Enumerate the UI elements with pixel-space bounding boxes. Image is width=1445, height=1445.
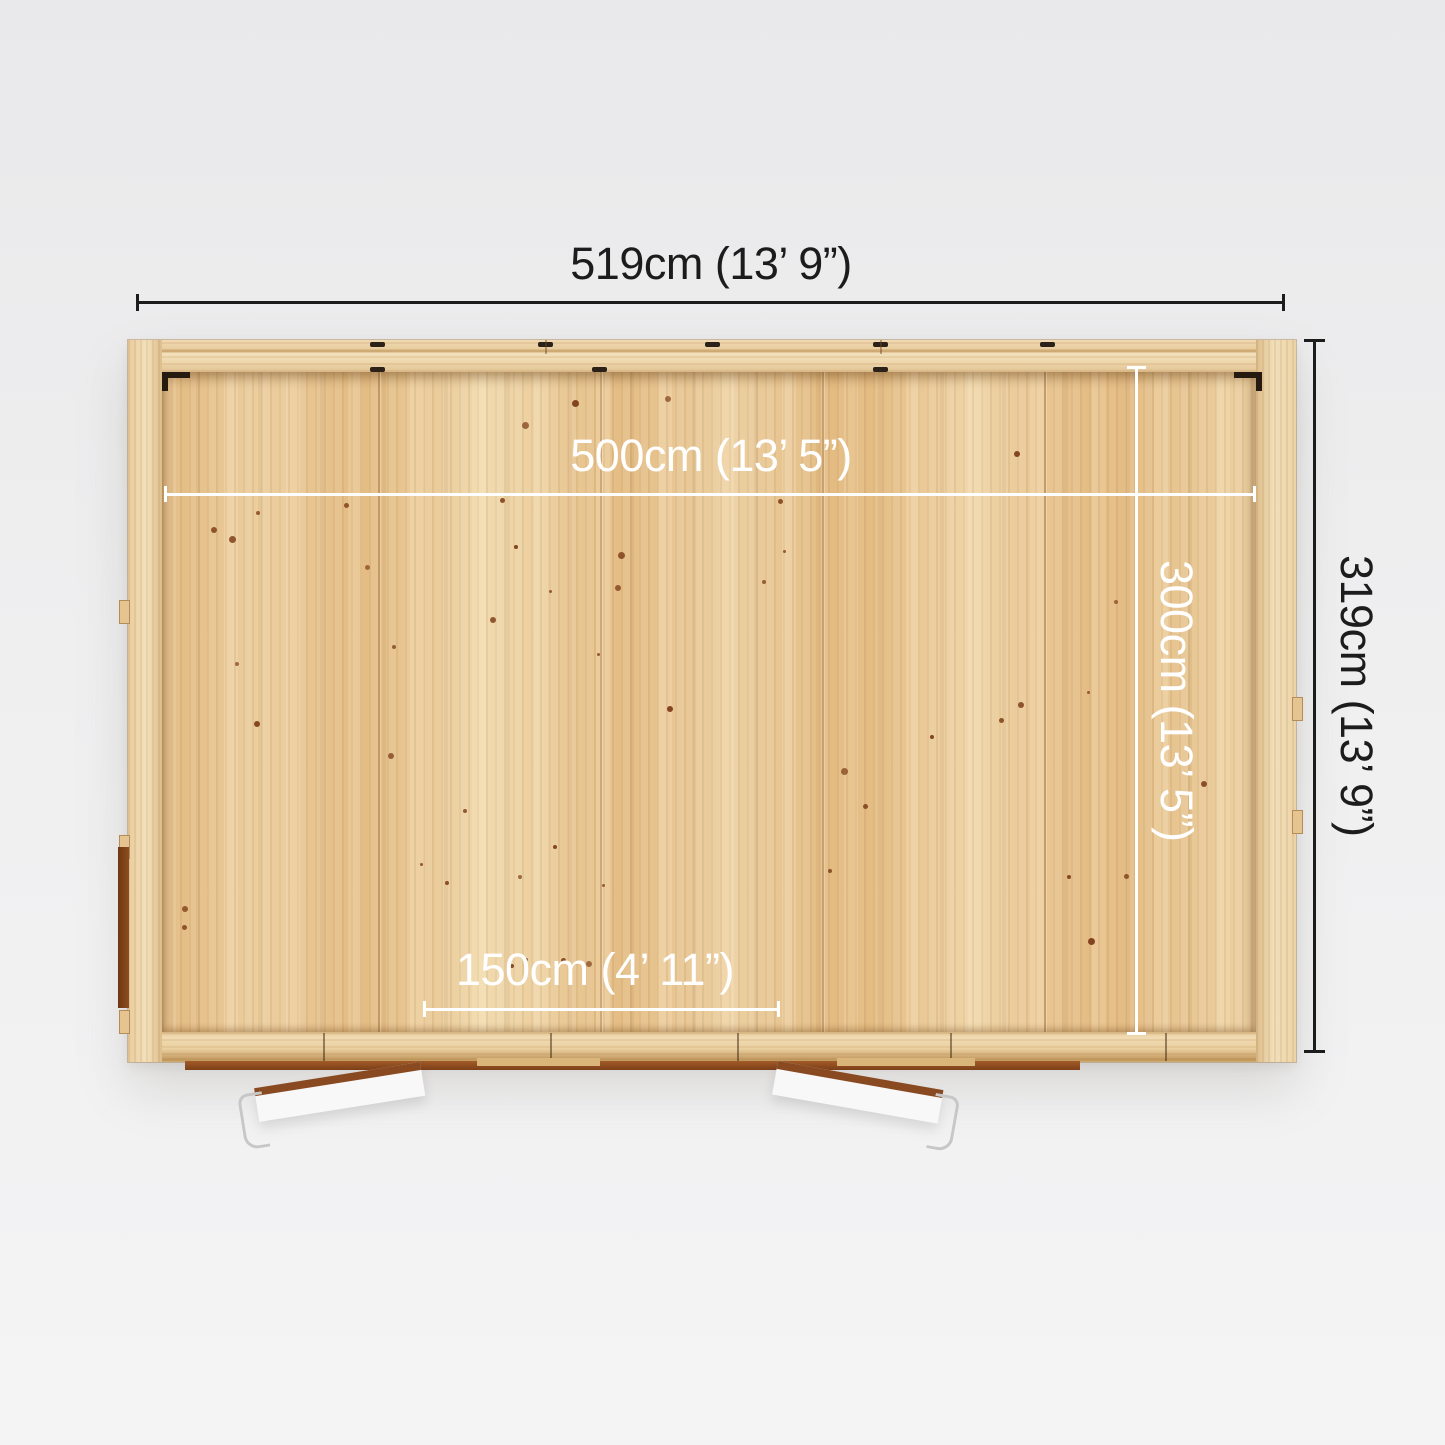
dimension-end-tick (136, 294, 139, 311)
wood-knot (1067, 875, 1071, 879)
dimension-end-tick (423, 1001, 426, 1017)
wood-knot (783, 550, 786, 553)
wall-log-joint (1165, 1033, 1167, 1061)
wall-clip-icon (370, 367, 385, 372)
wood-knot (211, 527, 217, 533)
wood-knot (618, 552, 625, 559)
wall-log-joint (737, 1033, 739, 1061)
wood-knot (182, 925, 187, 930)
dimension-end-tick (164, 486, 167, 502)
wood-knot (490, 617, 496, 623)
wood-knot (667, 706, 673, 712)
wood-knot (665, 396, 671, 402)
wood-knot (1088, 938, 1095, 945)
threshold-wood-segment (837, 1058, 975, 1066)
wall-clip-icon (370, 342, 385, 347)
wood-knot (388, 753, 394, 759)
dimension-end-tick (1127, 1032, 1146, 1035)
cabin-wall-right (1256, 340, 1296, 1062)
internal-depth-label: 300cm (13’ 5”) (1150, 367, 1202, 1035)
wall-log-joint (550, 1033, 552, 1061)
wood-knot (1124, 874, 1129, 879)
wood-knot (602, 884, 605, 887)
wood-knot (365, 565, 370, 570)
wood-knot (1087, 691, 1090, 694)
wood-knot (254, 721, 260, 727)
external-depth-dimension-line (1313, 340, 1316, 1052)
interior-corner-bracket-icon (162, 372, 190, 391)
wood-knot (1018, 702, 1024, 708)
wall-log-joint (880, 340, 882, 354)
wood-knot (229, 536, 236, 543)
wood-knot (522, 422, 529, 429)
wood-knot (235, 662, 239, 666)
dimension-end-tick (1127, 366, 1146, 369)
wood-knot (572, 400, 579, 407)
wood-knot (828, 869, 832, 873)
wall-clip-icon (592, 367, 607, 372)
wood-knot (256, 511, 260, 515)
wall-interlock-tab (1292, 810, 1303, 834)
door-handle-icon (926, 1093, 960, 1152)
side-door-plank (118, 847, 129, 1008)
external-depth-label: 319cm (13’ 9”) (1330, 340, 1382, 1052)
wood-knot (445, 881, 449, 885)
wood-knot (514, 545, 518, 549)
wood-knot (841, 768, 848, 775)
wood-knot (500, 498, 505, 503)
wood-knot (463, 809, 467, 813)
wood-knot (615, 585, 621, 591)
open-door-right (772, 1061, 943, 1124)
interior-corner-bracket-icon (1234, 372, 1262, 391)
internal-width-dimension-line (165, 493, 1256, 496)
wall-interlock-tab (1292, 697, 1303, 721)
wall-clip-icon (873, 367, 888, 372)
wall-interlock-tab (119, 1010, 130, 1034)
wood-knot (762, 580, 766, 584)
wood-knot (863, 804, 868, 809)
wall-clip-icon (705, 342, 720, 347)
wood-knot (999, 718, 1004, 723)
wall-log-joint (545, 340, 547, 354)
wood-knot (549, 590, 552, 593)
dimension-end-tick (1304, 1050, 1325, 1053)
door-handle-icon (237, 1091, 270, 1150)
dimension-end-tick (1253, 486, 1256, 502)
open-door-left (254, 1062, 425, 1122)
dimension-end-tick (1282, 294, 1285, 311)
internal-depth-dimension-line (1135, 367, 1138, 1035)
wood-knot (344, 503, 349, 508)
external-width-dimension-line (137, 301, 1284, 304)
wood-knot (420, 863, 423, 866)
internal-width-label: 500cm (13’ 5”) (361, 430, 1061, 482)
wood-knot (518, 875, 522, 879)
dimension-end-tick (1304, 339, 1325, 342)
wall-log-joint (950, 1033, 952, 1061)
wood-knot (392, 645, 396, 649)
threshold-wood-segment (477, 1058, 600, 1066)
wall-clip-icon (1040, 342, 1055, 347)
product-diagram-canvas: 519cm (13’ 9”) 319cm (13’ 9”) 500cm (13’… (0, 0, 1445, 1445)
wood-knot (1114, 600, 1118, 604)
wood-knot (553, 845, 557, 849)
wood-knot (778, 499, 783, 504)
wood-knot (930, 735, 934, 739)
wall-log-joint (323, 1033, 325, 1061)
wall-interlock-tab (119, 600, 130, 624)
door-opening-label: 150cm (4’ 11”) (295, 944, 895, 996)
door-opening-dimension-line (424, 1008, 779, 1011)
cabin-wall-left (128, 340, 162, 1062)
cabin-wall-bottom (128, 1032, 1296, 1062)
external-width-label: 519cm (13’ 9”) (361, 238, 1061, 290)
wood-knot (597, 653, 600, 656)
wood-knot (182, 906, 188, 912)
dimension-end-tick (777, 1001, 780, 1017)
